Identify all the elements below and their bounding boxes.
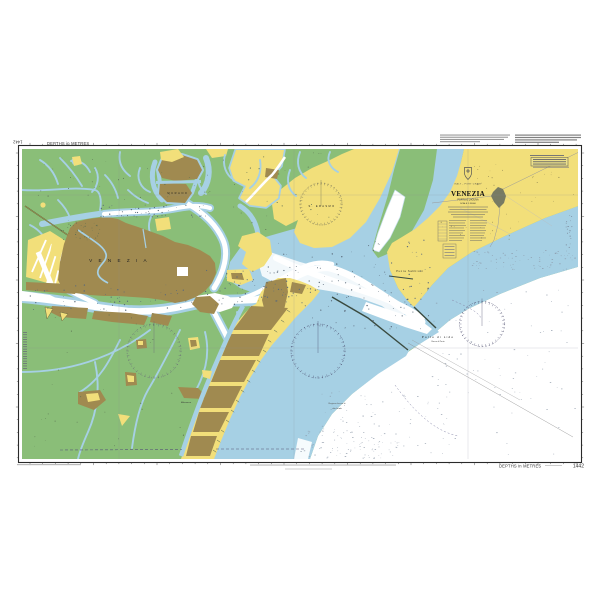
svg-text:Punta Sabbioni: Punta Sabbioni [396, 270, 423, 273]
svg-text:Porto di Lido: Porto di Lido [422, 335, 454, 339]
svg-text:Bocca di Porto: Bocca di Porto [431, 340, 445, 343]
svg-text:SCALE 1:30000: SCALE 1:30000 [460, 202, 476, 205]
svg-text:alto fondo: alto fondo [332, 407, 342, 410]
svg-text:MURANO: MURANO [167, 191, 188, 195]
svg-text:Regione bassa di: Regione bassa di [329, 403, 346, 405]
svg-text:1442: 1442 [573, 464, 584, 470]
svg-text:DEPTHS in METRES: DEPTHS in METRES [499, 464, 541, 469]
svg-text:PORTO E LAGUNA: PORTO E LAGUNA [457, 199, 479, 202]
svg-text:VENEZIA: VENEZIA [451, 190, 485, 198]
svg-text:1442: 1442 [13, 140, 23, 145]
svg-text:Malamocco: Malamocco [181, 402, 192, 404]
svg-text:S. ERASMO: S. ERASMO [308, 204, 335, 208]
svg-text:ITALY - PORT CHART: ITALY - PORT CHART [454, 183, 482, 186]
svg-text:VENEZIA: VENEZIA [89, 258, 153, 263]
